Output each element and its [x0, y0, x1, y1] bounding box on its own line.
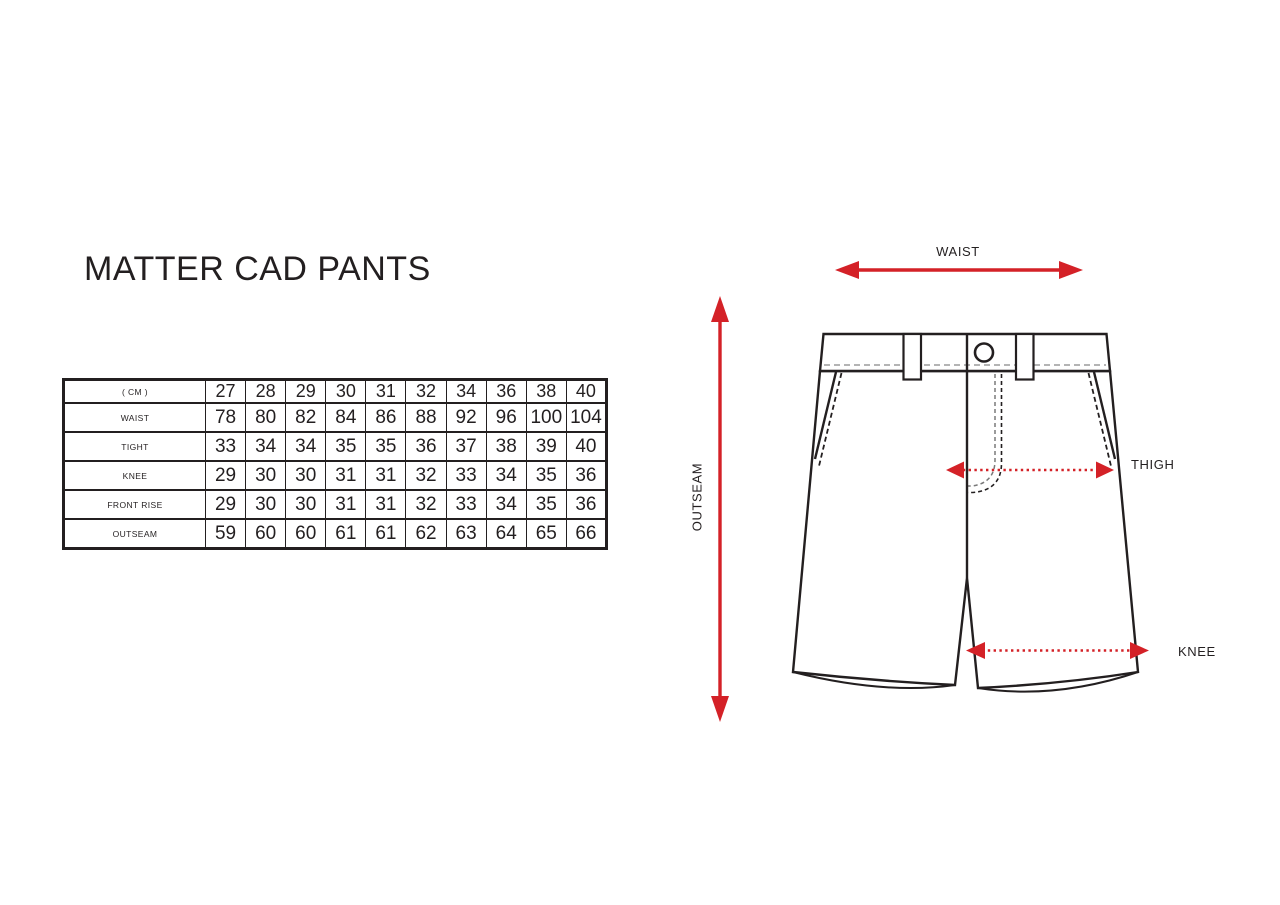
shorts-body: [793, 371, 1138, 688]
thigh-dimension-label: THIGH: [1131, 457, 1174, 472]
outseam-arrow: [711, 296, 729, 722]
outseam-dimension-label: OUTSEAM: [690, 463, 705, 531]
shorts-diagram: [0, 0, 1280, 905]
waist-dimension-label: WAIST: [936, 244, 980, 259]
belt-loop-left: [904, 334, 922, 380]
canvas: MATTER CAD PANTS ( CM )27282930313234363…: [0, 0, 1280, 905]
button: [975, 344, 993, 362]
knee-dimension-label: KNEE: [1178, 644, 1216, 659]
shorts-drawing: [793, 334, 1138, 692]
waist-arrow: [835, 261, 1083, 279]
belt-loop-right: [1016, 334, 1034, 380]
